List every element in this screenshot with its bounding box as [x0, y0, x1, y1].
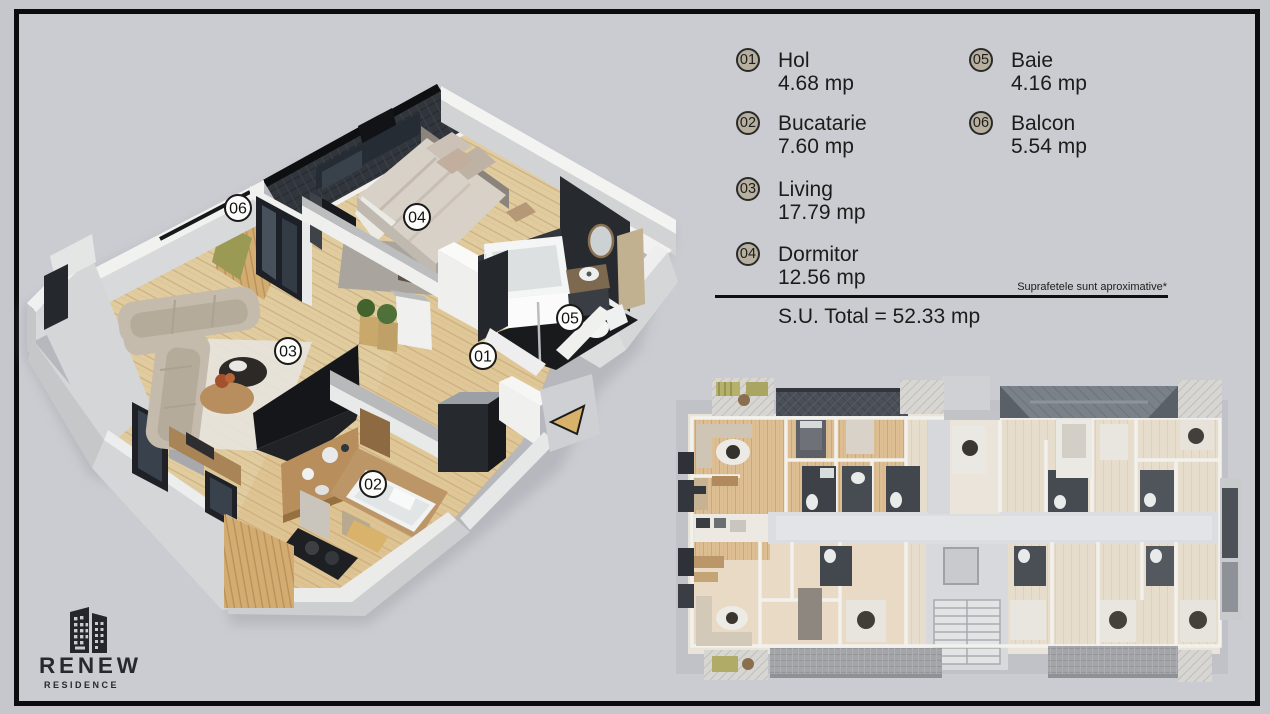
svg-text:04: 04: [408, 210, 426, 227]
svg-text:05: 05: [561, 311, 579, 328]
svg-text:01: 01: [474, 349, 492, 366]
svg-text:02: 02: [364, 477, 382, 494]
svg-text:03: 03: [279, 344, 297, 361]
svg-text:06: 06: [229, 201, 247, 218]
